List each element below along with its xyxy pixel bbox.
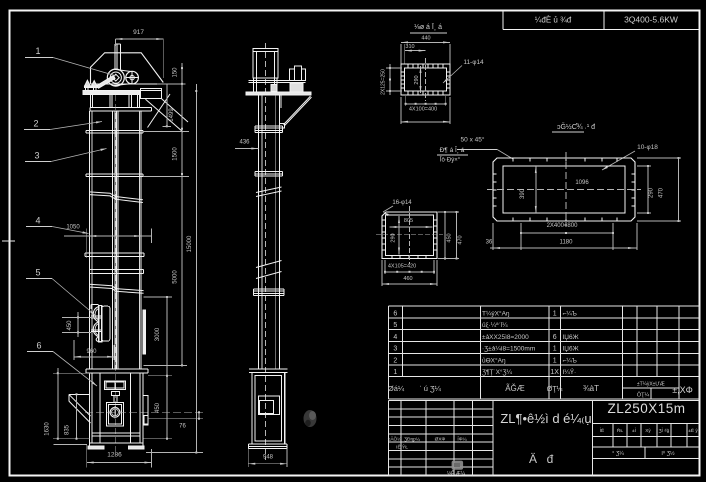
svg-text:⅛ø á Ī¸ á: ⅛ø á Ī¸ á bbox=[414, 23, 442, 31]
svg-text:Ä: Ä bbox=[529, 452, 537, 466]
svg-text:⅛Ẽ Æ¼: ⅛Ẽ Æ¼ bbox=[447, 470, 466, 477]
svg-text:1X: 1X bbox=[550, 369, 559, 376]
svg-text:ỈΦ¼: ỈΦ¼ bbox=[457, 436, 467, 443]
svg-text:835: 835 bbox=[65, 424, 71, 435]
svg-text:440: 440 bbox=[421, 36, 430, 42]
svg-text:⌐¼Ъ: ⌐¼Ъ bbox=[563, 310, 577, 317]
svg-text:1499: 1499 bbox=[169, 108, 175, 122]
svg-text:50 x 45°: 50 x 45° bbox=[461, 136, 485, 144]
svg-text:5000: 5000 bbox=[172, 270, 178, 284]
svg-text:ØXΦ: ØXΦ bbox=[435, 437, 446, 443]
svg-text:±Ỉ: ±Ỉ bbox=[632, 427, 637, 434]
svg-text:ÃǦÆ: ÃǦÆ bbox=[505, 384, 525, 393]
svg-text:ZL¶•ê½ì d é¼₍ụ: ZL¶•ê½ì d é¼₍ụ bbox=[500, 411, 591, 426]
svg-text:2X125=250: 2X125=250 bbox=[381, 69, 387, 95]
svg-text:6: 6 bbox=[393, 310, 397, 317]
svg-text:960: 960 bbox=[86, 349, 97, 355]
svg-text:ủƟX°Aŋ: ủƟX°Aŋ bbox=[482, 357, 506, 365]
svg-text:450: 450 bbox=[67, 320, 73, 331]
svg-text:ỈẼ: ỈẼ bbox=[600, 427, 605, 434]
svg-text:3000: 3000 bbox=[155, 327, 161, 341]
svg-text:1: 1 bbox=[553, 346, 557, 353]
svg-text:470: 470 bbox=[458, 235, 464, 244]
svg-text:805: 805 bbox=[404, 218, 413, 224]
svg-text:5: 5 bbox=[393, 322, 397, 329]
svg-text:·Ʒ±ả¼ì8=1500mm: ·Ʒ±ả¼ì8=1500mm bbox=[482, 346, 535, 353]
svg-text:ŘŁ: ŘŁ bbox=[617, 426, 623, 434]
svg-text:470: 470 bbox=[659, 187, 665, 198]
svg-text:948: 948 bbox=[263, 455, 274, 461]
svg-text:Øá¼: Øá¼ bbox=[388, 384, 405, 393]
svg-text:±Ẽ ỷ: ±Ẽ ỷ bbox=[688, 427, 698, 434]
svg-text:16-φ14: 16-φ14 bbox=[392, 200, 412, 206]
svg-text:2: 2 bbox=[393, 358, 397, 365]
svg-text:±T¼ỳX±ƯÆ: ±T¼ỳX±ƯÆ bbox=[637, 382, 665, 388]
svg-text:ØŢ¼: ØŢ¼ bbox=[547, 386, 563, 393]
svg-text:3: 3 bbox=[34, 151, 39, 161]
svg-text:4: 4 bbox=[35, 216, 40, 226]
svg-text:° Ʒ¼: ° Ʒ¼ bbox=[612, 451, 624, 457]
svg-text:450: 450 bbox=[155, 402, 161, 413]
svg-text:290: 290 bbox=[390, 233, 396, 242]
svg-text:ủξ·¼ªˈỉ¼: ủξ·¼ªˈỉ¼ bbox=[482, 321, 508, 329]
svg-text:ƷĐɳƿ¼: ƷĐɳƿ¼ bbox=[404, 437, 421, 443]
svg-text:5: 5 bbox=[35, 268, 40, 278]
svg-text:3Q400-5.6KW: 3Q400-5.6KW bbox=[624, 15, 678, 25]
svg-text:11-φ14: 11-φ14 bbox=[463, 59, 484, 66]
svg-text:±ÃÖ¼: ±ÃÖ¼ bbox=[388, 436, 403, 443]
svg-text:460: 460 bbox=[403, 276, 412, 282]
svg-text:1: 1 bbox=[553, 310, 557, 317]
svg-text:Īō·Đý×°: Īō·Đý×° bbox=[440, 157, 461, 164]
svg-text:ІẼ ỶŁ: ІẼ ỶŁ bbox=[396, 444, 408, 451]
svg-text:¼đÈ ủ ¾đ: ¼đÈ ủ ¾đ bbox=[535, 16, 572, 25]
svg-text:ÔŢ¼: ÔŢ¼ bbox=[637, 392, 650, 399]
svg-text:6: 6 bbox=[36, 341, 41, 351]
svg-text:917: 917 bbox=[133, 29, 144, 36]
svg-text:4X100=400: 4X100=400 bbox=[409, 107, 437, 113]
svg-text:2X400=800: 2X400=800 bbox=[547, 223, 579, 229]
svg-text:6: 6 bbox=[553, 334, 557, 341]
svg-text:150: 150 bbox=[172, 67, 178, 78]
svg-text:290: 290 bbox=[414, 75, 420, 84]
svg-text:±ảXX25ì8=2000: ±ảXX25ì8=2000 bbox=[482, 334, 529, 341]
svg-text:4X105=420: 4X105=420 bbox=[388, 264, 416, 270]
svg-text:ˈ ú Ʒ¼: ˈ ú Ʒ¼ bbox=[419, 384, 441, 393]
svg-text:ІЏ6Ж: ІЏ6Ж bbox=[563, 334, 579, 341]
svg-text:đ: đ bbox=[547, 452, 554, 466]
svg-text:1500: 1500 bbox=[172, 147, 178, 161]
svg-text:І¼Ỷ·: І¼Ỷ· bbox=[563, 367, 577, 376]
svg-text:ɔǦ½Ƈ¾ ˒¹ đ: ɔǦ½Ƈ¾ ˒¹ đ bbox=[557, 122, 595, 131]
svg-text:1: 1 bbox=[553, 358, 557, 365]
svg-text:450: 450 bbox=[447, 233, 453, 242]
svg-text:310: 310 bbox=[405, 44, 414, 50]
svg-text:2: 2 bbox=[33, 119, 38, 129]
svg-text:1180: 1180 bbox=[560, 240, 574, 246]
svg-text:⌐¼Ъ: ⌐¼Ъ bbox=[563, 358, 577, 365]
svg-text:36: 36 bbox=[486, 240, 493, 246]
svg-text:¾àT: ¾àT bbox=[583, 384, 599, 393]
svg-text:1: 1 bbox=[393, 369, 397, 376]
svg-text:1286: 1286 bbox=[107, 452, 122, 459]
svg-text:T¼ȳX°Aŋ: T¼ȳX°Aŋ bbox=[482, 309, 510, 317]
svg-text:Xỳ: Xỳ bbox=[645, 428, 651, 434]
svg-text:Đ¶ á Ī¸ á: Đ¶ á Ī¸ á bbox=[440, 146, 465, 154]
svg-text:±,XΦ: ±,XΦ bbox=[672, 385, 693, 395]
svg-text:І⁰ Ʒ½: І⁰ Ʒ½ bbox=[661, 450, 675, 457]
svg-text:1096: 1096 bbox=[575, 180, 589, 186]
svg-text:15000: 15000 bbox=[187, 235, 193, 252]
svg-text:436: 436 bbox=[239, 140, 250, 146]
svg-text:ZL250X15m: ZL250X15m bbox=[607, 401, 685, 416]
svg-text:10-φ18: 10-φ18 bbox=[637, 144, 658, 151]
svg-text:290: 290 bbox=[649, 187, 655, 198]
svg-text:Ʒ¶Ţ˙X°Ʒ¼: Ʒ¶Ţ˙X°Ʒ¼ bbox=[482, 368, 513, 376]
svg-text:4: 4 bbox=[393, 334, 397, 341]
svg-text:3: 3 bbox=[393, 346, 397, 353]
svg-text:1630: 1630 bbox=[45, 422, 51, 436]
svg-text:390: 390 bbox=[520, 188, 526, 199]
svg-text:76: 76 bbox=[179, 424, 186, 430]
svg-text:ІЏ6Ж: ІЏ6Ж bbox=[563, 346, 579, 353]
svg-text:ƷỈ ₫ģ: ƷỈ ₫ģ bbox=[659, 427, 670, 434]
svg-text:1: 1 bbox=[35, 46, 40, 56]
